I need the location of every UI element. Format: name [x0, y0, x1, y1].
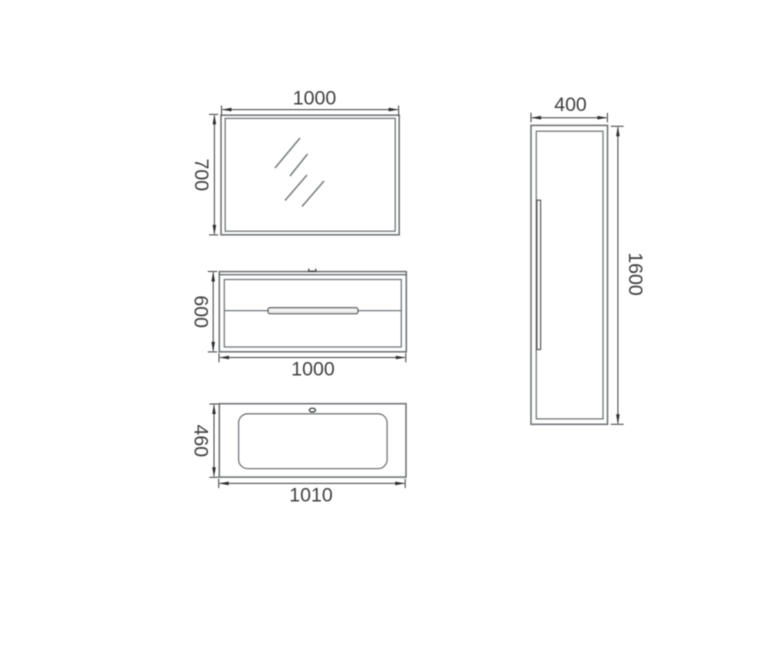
svg-text:600: 600 — [190, 295, 212, 328]
svg-text:460: 460 — [190, 425, 212, 458]
svg-text:700: 700 — [190, 159, 212, 192]
svg-text:1010: 1010 — [289, 485, 333, 507]
svg-text:400: 400 — [554, 94, 587, 116]
svg-text:1000: 1000 — [293, 88, 337, 110]
svg-text:1000: 1000 — [291, 359, 335, 381]
svg-text:1600: 1600 — [624, 252, 646, 296]
